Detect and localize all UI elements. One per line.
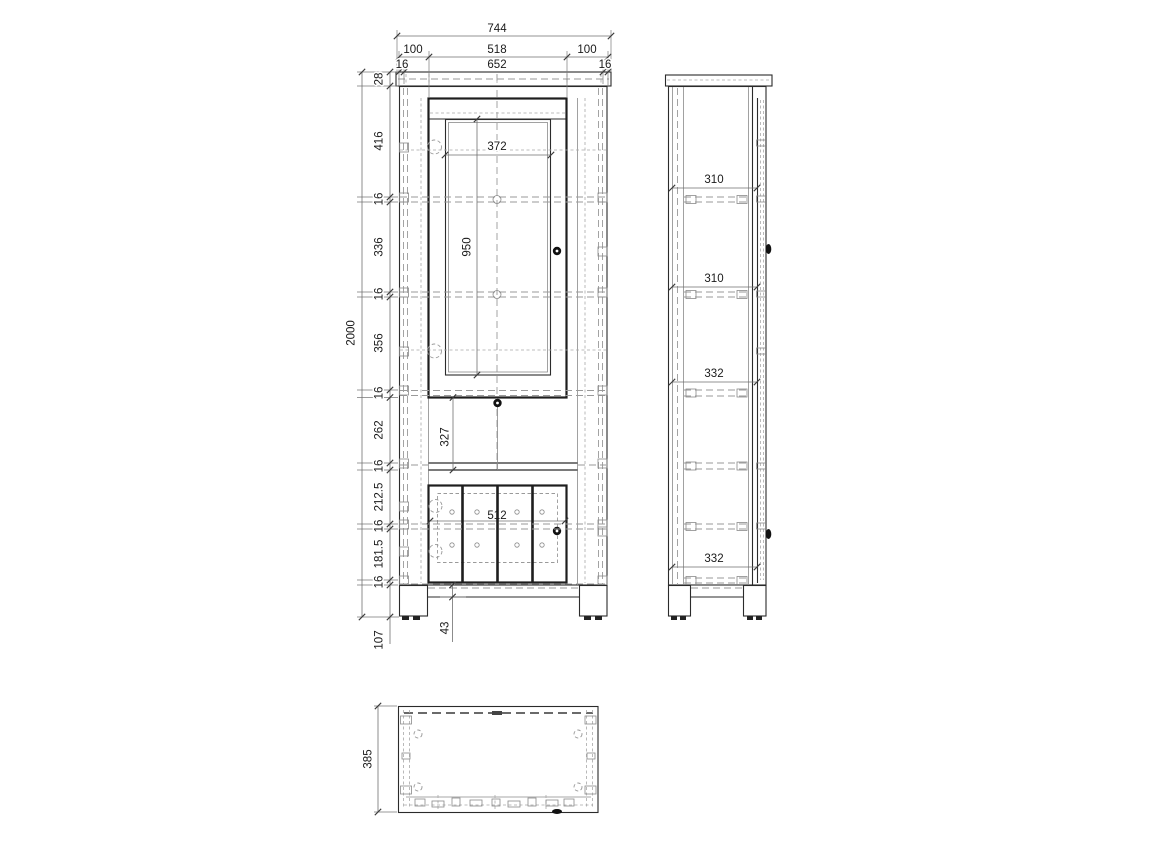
dim-side-stile-left: 100	[403, 44, 422, 56]
dim-shelf-2: 16	[374, 288, 386, 301]
side-legs	[669, 586, 767, 621]
dim-depth: 385	[363, 749, 375, 768]
top-view	[399, 707, 599, 815]
dim-shelf-3: 16	[374, 387, 386, 400]
side-foot-glide	[747, 616, 753, 620]
side-knob-upper	[766, 244, 772, 254]
dim-width-overall: 744	[487, 23, 507, 35]
dim-shelf-gap-3: 332	[704, 368, 723, 380]
front-legs	[400, 586, 608, 621]
dim-section-4: 262	[374, 420, 386, 439]
glass-door-knob-center	[556, 250, 559, 253]
dim-base-rail: 43	[440, 622, 452, 635]
front-view: 512	[396, 72, 611, 620]
side-foot-glide	[680, 616, 686, 620]
dim-height-overall: 2000	[346, 320, 358, 346]
dim-inner-width: 652	[487, 59, 506, 71]
dim-compartment-height: 327	[440, 427, 452, 446]
side-top-cap	[666, 75, 773, 86]
lower-doors: 512	[429, 486, 567, 583]
dim-side-stile-right: 100	[577, 44, 596, 56]
front-foot-glide	[402, 616, 409, 620]
side-foot-glide	[671, 616, 677, 620]
side-knob-lower	[766, 529, 772, 539]
front-right-leg	[580, 586, 608, 617]
front-left-leg	[400, 586, 428, 617]
dim-section-5: 212.5	[374, 483, 386, 512]
front-foot-glide	[413, 616, 420, 620]
dim-section-3: 356	[374, 333, 386, 352]
drawing-page: 512	[0, 0, 1153, 864]
dim-shelf-gap-1: 310	[704, 174, 723, 186]
side-view	[666, 75, 773, 620]
upper-door-knob-center	[496, 402, 499, 405]
dim-section-1: 416	[374, 131, 386, 150]
top-view-knob	[552, 809, 562, 814]
dim-shelf-1: 16	[374, 193, 386, 206]
dim-door-opening: 518	[487, 44, 506, 56]
dim-shelf-gap-4: 332	[704, 553, 723, 565]
dim-panel-left: 16	[396, 59, 409, 71]
dim-glass-door-height: 950	[462, 237, 474, 256]
dim-cap-thickness: 28	[374, 73, 386, 86]
dim-panel-right: 16	[599, 59, 612, 71]
lower-door-knob-center	[556, 530, 559, 533]
dim-shelf-4: 16	[374, 460, 386, 473]
side-front-leg	[744, 586, 767, 617]
dim-section-6: 181.5	[374, 540, 386, 569]
dim-glass-width: 372	[487, 141, 506, 153]
dim-shelf-6: 16	[374, 576, 386, 589]
front-foot-glide	[595, 616, 602, 620]
dim-section-2: 336	[374, 237, 386, 256]
dim-shelf-5: 16	[374, 520, 386, 533]
top-view-back-fitting	[492, 711, 502, 715]
side-back-leg	[669, 586, 691, 617]
dim-leg-height: 107	[374, 630, 386, 649]
drawing-canvas: 512	[0, 0, 1153, 864]
side-foot-glide	[756, 616, 762, 620]
front-foot-glide	[584, 616, 591, 620]
dim-shelf-gap-2: 310	[704, 273, 723, 285]
